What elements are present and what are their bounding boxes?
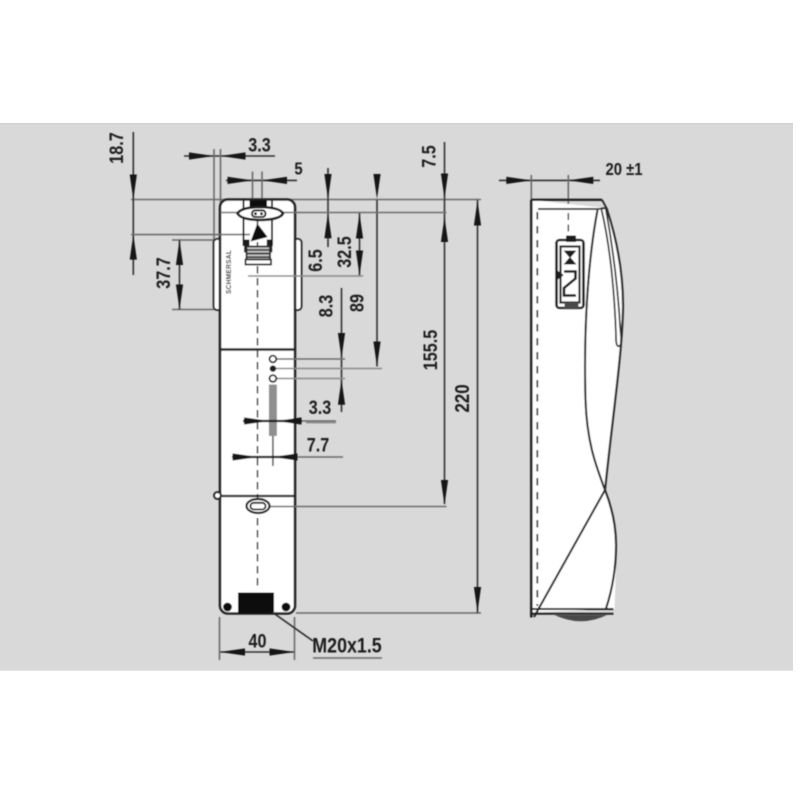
svg-text:18.7: 18.7 [106,132,128,164]
svg-text:SCHMERSAL: SCHMERSAL [226,250,233,294]
svg-text:20 ±1: 20 ±1 [605,160,642,179]
svg-text:37.7: 37.7 [153,257,175,289]
svg-text:6.5: 6.5 [305,249,327,272]
svg-text:32.5: 32.5 [334,236,356,268]
svg-text:3.3: 3.3 [309,397,332,419]
svg-text:7.5: 7.5 [418,145,440,168]
svg-text:3.3: 3.3 [248,134,271,156]
svg-text:40: 40 [249,630,267,652]
svg-text:89: 89 [346,294,368,312]
svg-text:7.7: 7.7 [307,434,330,456]
svg-text:M20x1.5: M20x1.5 [312,634,382,658]
svg-text:220: 220 [451,384,474,412]
svg-text:5: 5 [294,159,302,178]
svg-text:8.3: 8.3 [315,295,337,318]
svg-text:155.5: 155.5 [420,330,442,371]
